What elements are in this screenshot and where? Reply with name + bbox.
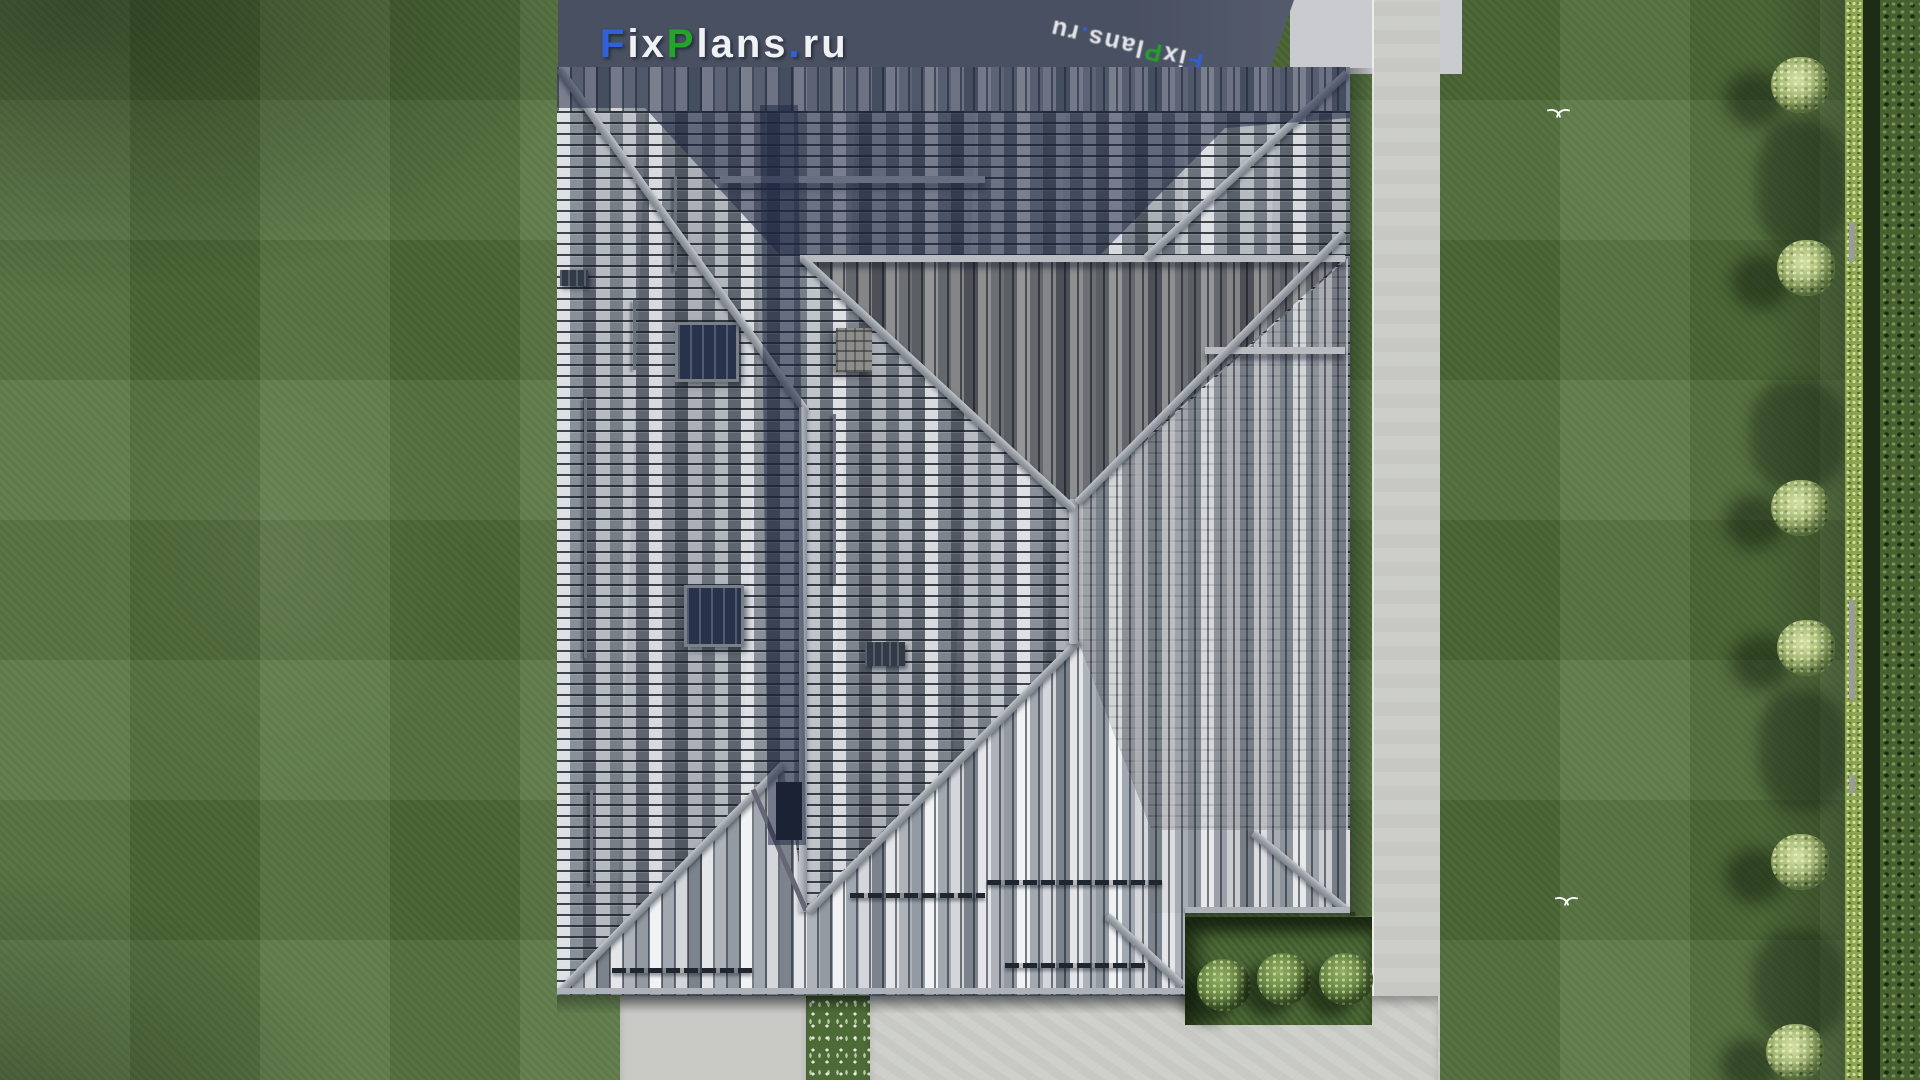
tree: [1771, 480, 1829, 536]
tree-shadow-blob: [1750, 380, 1845, 490]
bird-icon: [1548, 108, 1568, 118]
bird-icon: [1556, 896, 1576, 906]
logo-seg-f: F: [600, 22, 627, 66]
tree: [1766, 1024, 1824, 1080]
tree: [1777, 240, 1835, 296]
hedge-gap-shadow: [1863, 0, 1880, 1080]
roof-vent: [865, 642, 905, 666]
snow-rail: [584, 398, 587, 658]
logo-seg-ix: ix: [627, 22, 666, 66]
logo-seg-dot: .: [789, 22, 803, 66]
tree-shadow-blob: [1758, 690, 1846, 810]
roof-edge-grass-shadow: [1350, 68, 1374, 916]
logo-seg-p: P: [667, 22, 697, 66]
tree: [1771, 57, 1829, 113]
snow-guard-bar: [850, 893, 985, 898]
snow-guard-bar: [987, 880, 1162, 885]
tree: [1777, 620, 1835, 676]
aerial-render-scene: FixPlans.ru FixPlans.ru FixPlans.ru: [0, 0, 1920, 1080]
bush: [1197, 959, 1251, 1011]
bush: [1257, 953, 1311, 1005]
bush: [1319, 953, 1373, 1005]
snow-rail: [633, 300, 636, 370]
eave-shadow: [557, 994, 1187, 1014]
gutter-bottom: [557, 988, 1185, 994]
path-vertical: [1372, 0, 1440, 1080]
tree-shadow-blob: [1756, 120, 1846, 250]
eave-step: [800, 255, 1345, 262]
ridge-right-vertical: [1069, 499, 1078, 644]
fence-post: [1849, 600, 1855, 700]
snow-rail: [590, 790, 593, 885]
fence-post: [1849, 775, 1855, 793]
fence-post: [1849, 222, 1855, 262]
roof-window: [675, 322, 739, 382]
brand-logo: FixPlans.ru: [600, 22, 849, 67]
chimney: [836, 328, 872, 372]
gutter-wing: [1185, 907, 1350, 913]
snow-guard-bar: [1005, 963, 1145, 968]
logo-seg-lans: lans: [696, 22, 788, 66]
roof-window: [684, 585, 744, 647]
snow-guard-bar: [612, 968, 752, 973]
house-roof: [557, 67, 1350, 995]
snow-rail: [833, 414, 836, 584]
roof-vent: [560, 270, 588, 286]
pocket-garden: [1185, 917, 1372, 1025]
border-foliage: [1880, 0, 1920, 1080]
shadow-slot: [776, 782, 802, 840]
tree: [1771, 834, 1829, 890]
logo-seg-ru: ru: [803, 22, 849, 66]
hedge-trimmed: [1845, 0, 1863, 1080]
